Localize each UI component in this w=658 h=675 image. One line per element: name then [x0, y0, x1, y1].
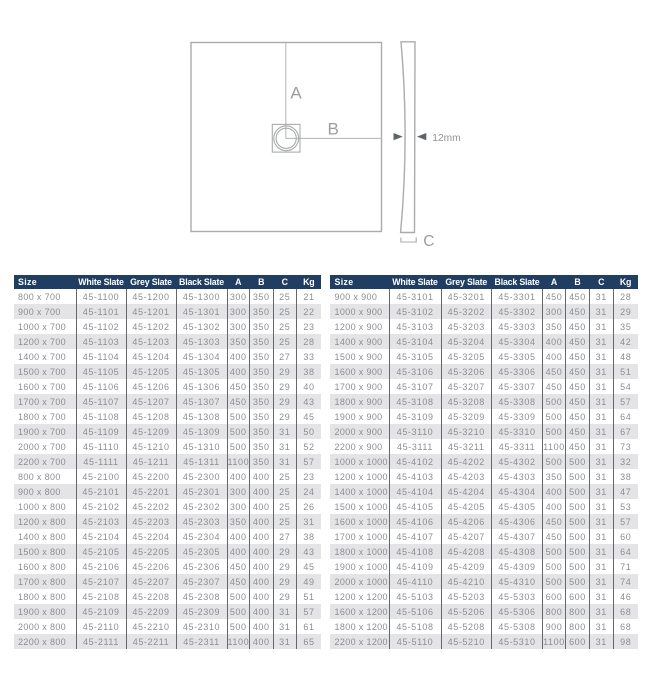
svg-text:A: A — [290, 84, 302, 103]
svg-text:B: B — [328, 120, 339, 139]
svg-text:12mm: 12mm — [432, 133, 460, 144]
svg-text:C: C — [423, 233, 434, 250]
